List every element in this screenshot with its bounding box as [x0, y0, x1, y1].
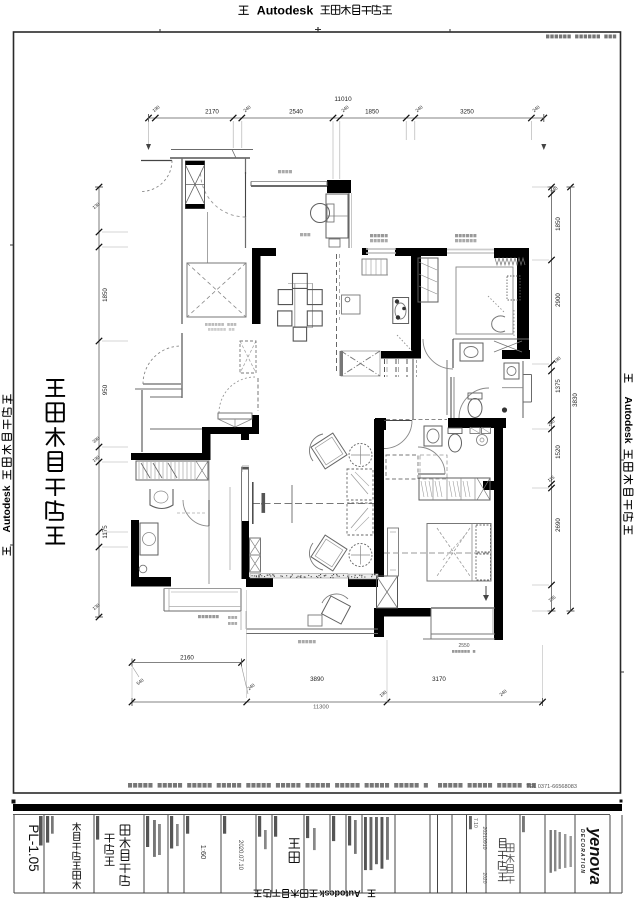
- svg-text:2540: 2540: [289, 109, 303, 116]
- svg-text:2900: 2900: [555, 293, 562, 307]
- svg-text:11300: 11300: [313, 705, 329, 711]
- svg-text:2020: 2020: [481, 872, 487, 883]
- svg-text:2690: 2690: [555, 518, 562, 532]
- svg-text:3170: 3170: [432, 676, 446, 683]
- svg-text:7.10: 7.10: [472, 818, 478, 828]
- svg-text:20210910: 20210910: [481, 826, 487, 849]
- svg-text:Autodesk: Autodesk: [622, 397, 633, 444]
- svg-text:yenova: yenova: [586, 827, 604, 885]
- svg-text:2170: 2170: [205, 109, 219, 116]
- svg-text:2550: 2550: [458, 643, 469, 649]
- svg-text:1520: 1520: [555, 445, 562, 459]
- svg-text:2020.07.10: 2020.07.10: [237, 840, 243, 871]
- svg-text:1:60: 1:60: [199, 845, 208, 860]
- svg-text:Autodesk: Autodesk: [2, 485, 13, 532]
- svg-text:11010: 11010: [334, 96, 352, 103]
- svg-text:1850: 1850: [102, 288, 109, 302]
- svg-text:3250: 3250: [460, 109, 474, 116]
- svg-text:DECORATION: DECORATION: [579, 829, 585, 874]
- svg-text:950: 950: [102, 384, 109, 395]
- svg-text:1375: 1375: [555, 379, 562, 393]
- svg-text:Autodesk: Autodesk: [257, 4, 314, 18]
- svg-text:1850: 1850: [555, 217, 562, 231]
- svg-text:TEL 0371-66568083: TEL 0371-66568083: [526, 784, 577, 790]
- svg-text:3830: 3830: [572, 393, 579, 407]
- svg-text:2160: 2160: [180, 655, 194, 662]
- svg-text:3890: 3890: [310, 676, 324, 683]
- svg-text:1175: 1175: [102, 525, 109, 539]
- svg-text:1850: 1850: [365, 109, 379, 116]
- svg-text:PL-1.05: PL-1.05: [26, 824, 41, 871]
